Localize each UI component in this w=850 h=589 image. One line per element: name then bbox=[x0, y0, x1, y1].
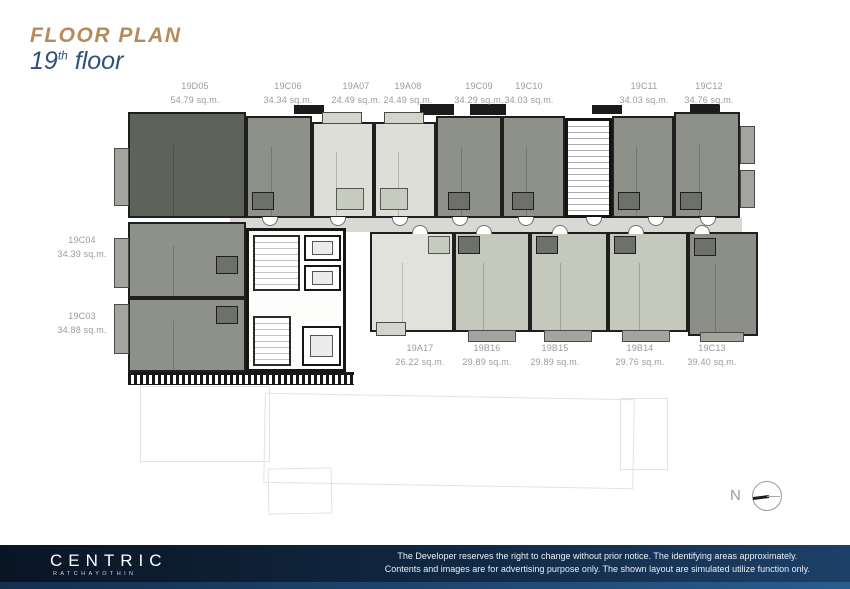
unit-19d05-shape bbox=[128, 112, 246, 218]
unit-label-19c03: 19C03 34.88 sq.m. bbox=[40, 310, 124, 337]
unit-id: 19C03 bbox=[40, 310, 124, 324]
unit-area: 39.40 sq.m. bbox=[670, 356, 754, 370]
bathroom-19c13 bbox=[694, 238, 716, 256]
unit-label-19c10: 19C10 34.03 sq.m. bbox=[487, 80, 571, 107]
unit-area: 34.88 sq.m. bbox=[40, 324, 124, 338]
floor-word: floor bbox=[68, 47, 124, 75]
door-arc bbox=[476, 225, 492, 234]
unit-area: 34.76 sq.m. bbox=[667, 94, 751, 108]
unit-area: 34.03 sq.m. bbox=[487, 94, 571, 108]
podium-outline bbox=[620, 398, 668, 470]
north-label: N bbox=[730, 487, 741, 504]
terrace-edge-hatch bbox=[128, 372, 354, 385]
bathroom-19a08 bbox=[380, 188, 408, 210]
floor-plan-page: FLOOR PLAN 19th floor bbox=[0, 0, 850, 589]
podium-outline bbox=[268, 467, 333, 514]
balcony-19c12-upper bbox=[740, 126, 755, 164]
balcony-19c12-lower bbox=[740, 170, 755, 208]
balcony-19a07 bbox=[322, 112, 362, 124]
bathroom-19c09 bbox=[448, 192, 470, 210]
door-arc bbox=[552, 225, 568, 234]
floor-ordinal: th bbox=[58, 49, 68, 63]
stairwell-top bbox=[565, 118, 612, 218]
balcony-19b15 bbox=[544, 330, 592, 342]
unit-id: 19C12 bbox=[667, 80, 751, 94]
balcony-19d05 bbox=[114, 148, 129, 206]
core-service-room bbox=[253, 316, 291, 366]
bathroom-19c11 bbox=[618, 192, 640, 210]
unit-area: 34.39 sq.m. bbox=[40, 248, 124, 262]
bathroom-19c06 bbox=[252, 192, 274, 210]
disclaimer-line-1: The Developer reserves the right to chan… bbox=[385, 550, 810, 563]
floor-number: 19 bbox=[30, 47, 58, 75]
unit-id: 19D05 bbox=[153, 80, 237, 94]
unit-area: 29.89 sq.m. bbox=[513, 356, 597, 370]
brand-logo: CENTRIC bbox=[50, 551, 168, 571]
brand-sublabel: RATCHAYOTHIN bbox=[53, 571, 136, 577]
unit-area: 54.79 sq.m. bbox=[153, 94, 237, 108]
unit-label-19c13: 19C13 39.40 sq.m. bbox=[670, 342, 754, 369]
elevator-3 bbox=[302, 326, 341, 366]
balcony-19a17 bbox=[376, 322, 406, 336]
compass-tail-icon bbox=[767, 496, 780, 497]
bathroom-19a17 bbox=[428, 236, 450, 254]
bathroom-19c10 bbox=[512, 192, 534, 210]
unit-label-19c12: 19C12 34.76 sq.m. bbox=[667, 80, 751, 107]
door-arc bbox=[628, 225, 644, 234]
elevator-1 bbox=[304, 235, 341, 261]
podium-outline bbox=[140, 386, 270, 462]
door-arc bbox=[694, 225, 710, 234]
bathroom-19b15 bbox=[536, 236, 558, 254]
door-arc bbox=[412, 225, 428, 234]
bathroom-19c03 bbox=[216, 306, 238, 324]
unit-label-19c04: 19C04 34.39 sq.m. bbox=[40, 234, 124, 261]
bathroom-19c12 bbox=[680, 192, 702, 210]
balcony-19b16 bbox=[468, 330, 516, 342]
balcony-19b14 bbox=[622, 330, 670, 342]
bathroom-19b14 bbox=[614, 236, 636, 254]
unit-id: 19B15 bbox=[513, 342, 597, 356]
elevator-2 bbox=[304, 265, 341, 291]
core-staircase bbox=[253, 235, 300, 291]
footer-band-strip bbox=[0, 582, 850, 589]
unit-label-19d05: 19D05 54.79 sq.m. bbox=[153, 80, 237, 107]
unit-id: 19C13 bbox=[670, 342, 754, 356]
balcony-19c13 bbox=[700, 332, 744, 342]
unit-id: 19C04 bbox=[40, 234, 124, 248]
disclaimer-line-2: Contents and images are for advertising … bbox=[385, 563, 810, 576]
bathroom-19c04 bbox=[216, 256, 238, 274]
unit-id: 19C10 bbox=[487, 80, 571, 94]
footer-disclaimer: The Developer reserves the right to chan… bbox=[385, 550, 810, 576]
page-title: FLOOR PLAN bbox=[30, 24, 182, 48]
floor-subtitle: 19th floor bbox=[30, 47, 123, 76]
bathroom-19a07 bbox=[336, 188, 364, 210]
unit-label-19b15: 19B15 29.89 sq.m. bbox=[513, 342, 597, 369]
balcony-19a08 bbox=[384, 112, 424, 124]
bathroom-19b16 bbox=[458, 236, 480, 254]
